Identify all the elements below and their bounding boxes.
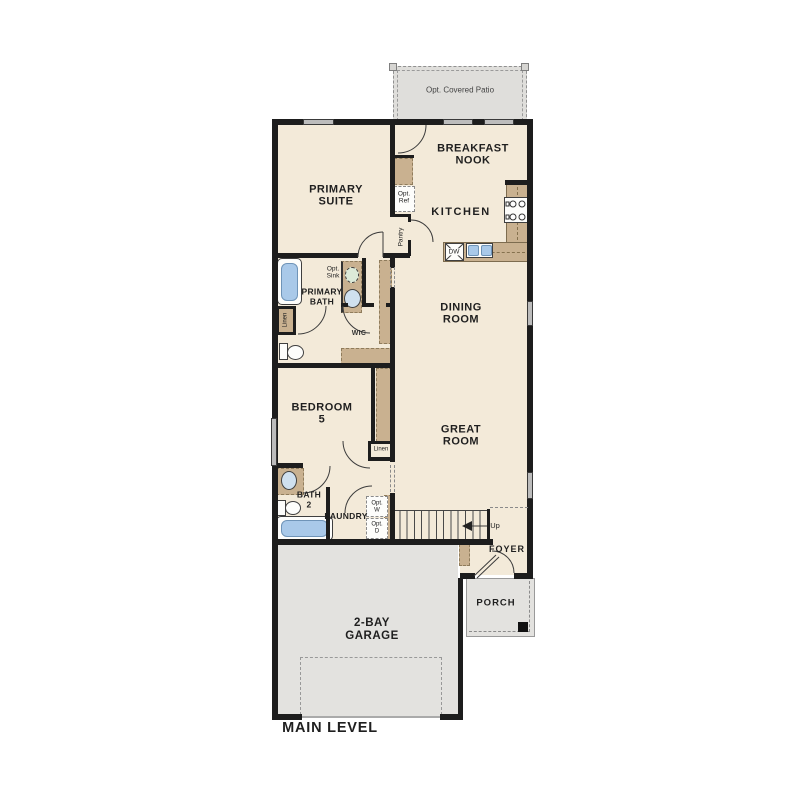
stairs-up-label: Up [490, 522, 500, 530]
great-room-label: GREAT ROOM [441, 424, 481, 449]
primary-sink-optional [345, 267, 359, 283]
garage-label: 2-BAY GARAGE [345, 617, 398, 643]
patio-post-right [521, 63, 529, 71]
opt-washer-label: Opt. W [371, 500, 382, 513]
foyer-chase [459, 544, 470, 566]
wall [390, 253, 395, 268]
opt-dryer-label: Opt. D [371, 521, 382, 534]
plan-title: MAIN LEVEL [282, 720, 378, 736]
garage-door-outline [300, 657, 442, 715]
wall [368, 441, 395, 444]
wall [362, 258, 366, 305]
wall [272, 119, 278, 545]
window-nook-2 [484, 119, 514, 125]
breakfast-nook-label: BREAKFAST NOOK [437, 143, 509, 168]
foyer-label: FOYER [489, 544, 525, 554]
wall [390, 287, 395, 462]
wall [460, 573, 475, 579]
primary-suite-label: PRIMARY SUITE [309, 184, 363, 209]
kitchen-sink-basin-right [481, 245, 492, 256]
primary-toilet-bowl [287, 345, 304, 360]
opening-greatroom-foyer [490, 507, 528, 509]
porch-label: PORCH [476, 599, 515, 610]
patio-label: Opt. Covered Patio [426, 87, 494, 96]
patio-inner-border [397, 70, 523, 121]
kitchen-cabinet-left [394, 158, 413, 185]
opt-ref-label: Opt. Ref [398, 191, 410, 206]
wall [383, 253, 410, 258]
wall [390, 122, 395, 214]
wall [371, 367, 375, 443]
patio-post-left [389, 63, 397, 71]
window-great-room [527, 472, 533, 499]
window-nook-1 [443, 119, 473, 125]
wall [272, 545, 278, 720]
pantry-label: Pantry [397, 228, 404, 247]
wic-label: WIC [352, 330, 367, 338]
stove-icon [504, 197, 529, 223]
dw-label: DW [448, 248, 461, 255]
wall [390, 493, 395, 541]
kitchen-sink-basin-left [468, 245, 479, 256]
wall [505, 180, 532, 185]
wall [362, 303, 374, 307]
primary-tub-water [281, 263, 298, 301]
opt-sink-label: Opt. Sink [327, 266, 340, 281]
wall [527, 119, 533, 578]
porch-post [518, 622, 528, 632]
laundry-label: LAUNDRY [324, 512, 367, 522]
opening-kitchen-hall [390, 267, 395, 288]
wall [368, 457, 395, 461]
dining-room-label: DINING ROOM [440, 302, 482, 327]
wall [408, 214, 411, 222]
wall [514, 573, 533, 579]
staircase [392, 510, 487, 540]
garage-door-opening [302, 716, 440, 718]
window-bedroom5 [271, 418, 277, 466]
wall [386, 303, 395, 307]
kitchen-label: KITCHEN [431, 206, 490, 218]
bedroom5-label: BEDROOM 5 [292, 402, 353, 427]
wall [272, 539, 493, 545]
wall [368, 441, 371, 461]
wall [272, 363, 395, 368]
window-primary-suite [303, 119, 334, 125]
hall-linen-label: Linen [374, 447, 389, 454]
bath2-tub-water [281, 520, 328, 537]
bath2-sink [281, 471, 297, 490]
wall [391, 155, 414, 158]
floor-plan: Opt. Covered Patio PRIMARY SUITE BREAKFA… [0, 0, 810, 802]
wall [458, 578, 463, 720]
bath2-label: BATH 2 [297, 490, 321, 509]
window-dining [527, 301, 533, 326]
primary-bath-label: PRIMARY BATH [302, 287, 343, 306]
wall [272, 253, 358, 258]
opening-hall-stairs [390, 465, 395, 492]
primary-linen-label: Linen [283, 313, 290, 328]
